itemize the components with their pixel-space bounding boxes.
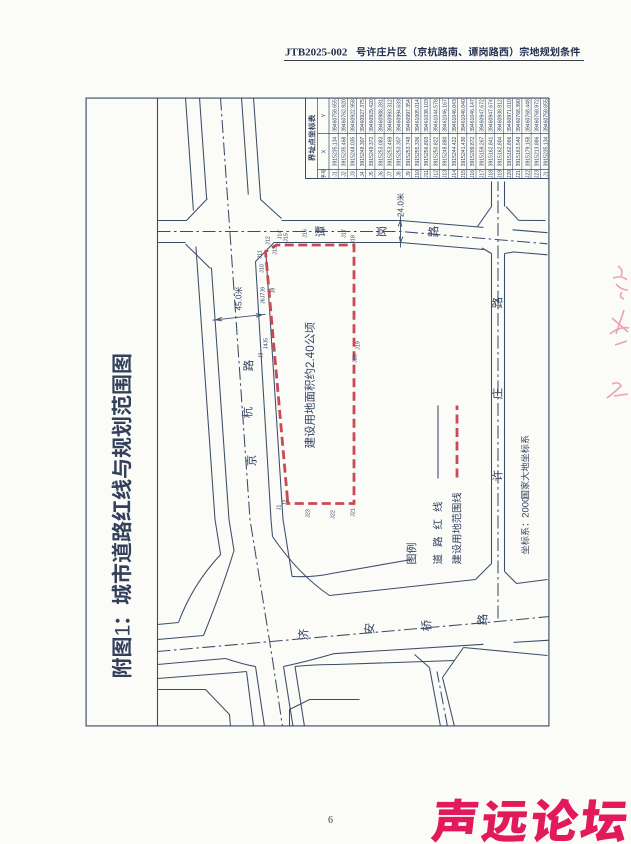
svg-text:J13: J13 bbox=[443, 170, 449, 178]
svg-text:J20: J20 bbox=[507, 170, 513, 178]
svg-text:39460947.674: 39460947.674 bbox=[489, 99, 495, 132]
svg-text:J19: J19 bbox=[498, 170, 504, 178]
svg-text:3915209.872: 3915209.872 bbox=[470, 136, 476, 166]
svg-text:39461046.043: 39461046.043 bbox=[452, 99, 458, 132]
svg-text:39460947.672: 39460947.672 bbox=[479, 99, 485, 132]
svg-text:JTB2025-002: JTB2025-002 bbox=[285, 47, 348, 59]
svg-text:3915162.841: 3915162.841 bbox=[489, 136, 495, 166]
svg-text:J11: J11 bbox=[258, 250, 264, 258]
svg-text:J8: J8 bbox=[397, 171, 403, 177]
svg-text:39460997.354: 39460997.354 bbox=[406, 99, 412, 132]
svg-text:J1: J1 bbox=[332, 171, 338, 177]
svg-text:J3: J3 bbox=[259, 353, 265, 359]
svg-text:J2: J2 bbox=[342, 171, 348, 177]
svg-text:J10: J10 bbox=[260, 264, 266, 273]
svg-text:3915244.422: 3915244.422 bbox=[452, 136, 458, 166]
svg-text:3915162.866: 3915162.866 bbox=[507, 136, 513, 166]
svg-text:6: 6 bbox=[328, 815, 333, 826]
svg-text:39460927.375: 39460927.375 bbox=[360, 99, 366, 132]
svg-text:3915241.430: 3915241.430 bbox=[461, 136, 467, 166]
svg-text:3915235.134: 3915235.134 bbox=[544, 136, 550, 166]
svg-text:J16: J16 bbox=[470, 170, 476, 178]
svg-text:J18: J18 bbox=[351, 235, 357, 244]
svg-text:J15: J15 bbox=[461, 170, 467, 178]
svg-text:3915249.372: 3915249.372 bbox=[369, 136, 375, 166]
svg-text:3915248.035: 3915248.035 bbox=[351, 136, 357, 166]
svg-text:3915163.540: 3915163.540 bbox=[516, 136, 522, 166]
svg-text:J17: J17 bbox=[479, 170, 485, 178]
svg-text:3915253.748: 3915253.748 bbox=[406, 136, 412, 166]
svg-text:J23: J23 bbox=[535, 170, 541, 178]
svg-text:39460768.448: 39460768.448 bbox=[525, 99, 531, 132]
svg-text:J5: J5 bbox=[369, 171, 375, 177]
svg-text:39460929.420: 39460929.420 bbox=[369, 99, 375, 132]
svg-text:J9: J9 bbox=[406, 171, 412, 177]
svg-text:1: 1 bbox=[111, 625, 135, 637]
svg-text:J7: J7 bbox=[388, 171, 394, 177]
svg-text:39460758.655: 39460758.655 bbox=[544, 99, 550, 132]
svg-text:3915248.880: 3915248.880 bbox=[443, 136, 449, 166]
svg-text:39460938.812: 39460938.812 bbox=[498, 99, 504, 132]
svg-text:39461005.014: 39461005.014 bbox=[415, 99, 421, 132]
svg-text:J19: J19 bbox=[356, 341, 362, 350]
svg-text:J18: J18 bbox=[489, 170, 495, 178]
svg-text:3915248.307: 3915248.307 bbox=[360, 136, 366, 166]
svg-text:J11: J11 bbox=[424, 170, 430, 178]
svg-text:39460922.958: 39460922.958 bbox=[351, 99, 357, 132]
svg-text:X: X bbox=[322, 149, 328, 153]
svg-text:J21: J21 bbox=[516, 170, 522, 178]
svg-text:39461038.103: 39461038.103 bbox=[424, 99, 430, 132]
svg-text:J21: J21 bbox=[351, 508, 357, 517]
svg-text:24.0: 24.0 bbox=[397, 201, 406, 217]
svg-text:3915255.336: 3915255.336 bbox=[415, 136, 421, 166]
svg-text:J12: J12 bbox=[266, 236, 272, 245]
svg-text:3915253.307: 3915253.307 bbox=[397, 136, 403, 166]
svg-text:J20: J20 bbox=[353, 354, 359, 363]
svg-text:J10: J10 bbox=[415, 170, 421, 178]
svg-text:3915235.468: 3915235.468 bbox=[342, 136, 348, 166]
svg-text:3915235.134: 3915235.134 bbox=[332, 136, 338, 166]
svg-text:39460988.281: 39460988.281 bbox=[378, 99, 384, 132]
svg-text:3915179.158: 3915179.158 bbox=[525, 136, 531, 166]
svg-text:45.0: 45.0 bbox=[235, 294, 244, 310]
svg-text:Y: Y bbox=[322, 113, 328, 117]
svg-text:J12: J12 bbox=[433, 170, 439, 178]
svg-text:3915253.469: 3915253.469 bbox=[388, 136, 394, 166]
svg-text:39461044.578: 39461044.578 bbox=[433, 99, 439, 132]
svg-text:39460768.390: 39460768.390 bbox=[516, 99, 522, 132]
svg-text:3915253.083: 3915253.083 bbox=[378, 136, 384, 166]
svg-text:J1: J1 bbox=[544, 171, 550, 177]
svg-text:39460994.633: 39460994.633 bbox=[397, 99, 403, 132]
svg-text:39461046.147: 39461046.147 bbox=[470, 99, 476, 132]
svg-text:39460971.010: 39460971.010 bbox=[507, 99, 513, 132]
svg-text:3915256.803: 3915256.803 bbox=[424, 136, 430, 166]
svg-text:3915159.267: 3915159.267 bbox=[479, 136, 485, 166]
svg-text:39461046.167: 39461046.167 bbox=[443, 99, 449, 132]
svg-text:J8: J8 bbox=[271, 288, 277, 294]
svg-text:J15: J15 bbox=[284, 233, 290, 242]
svg-text:39460762.920: 39460762.920 bbox=[342, 99, 348, 132]
svg-text:J6J7J9: J6J7J9 bbox=[261, 287, 267, 304]
svg-text:39460758.655: 39460758.655 bbox=[332, 99, 338, 132]
svg-text:J1: J1 bbox=[277, 505, 283, 511]
svg-text:J4: J4 bbox=[360, 171, 366, 177]
svg-text:J3: J3 bbox=[351, 171, 357, 177]
svg-text:J6: J6 bbox=[378, 171, 384, 177]
svg-text:J13: J13 bbox=[273, 246, 279, 255]
svg-text:3915250.822: 3915250.822 bbox=[433, 136, 439, 166]
svg-text:J17: J17 bbox=[342, 229, 348, 238]
svg-text:2.40: 2.40 bbox=[304, 345, 317, 368]
svg-text:3915213.886: 3915213.886 bbox=[535, 136, 541, 166]
svg-text:39460768.972: 39460768.972 bbox=[535, 99, 541, 132]
svg-text:3915162.804: 3915162.804 bbox=[498, 136, 504, 166]
svg-text:39460993.312: 39460993.312 bbox=[388, 99, 394, 132]
svg-text:2000: 2000 bbox=[520, 497, 531, 518]
svg-text:J4J5: J4J5 bbox=[264, 338, 270, 349]
svg-text:J23: J23 bbox=[306, 509, 312, 518]
svg-text:J2: J2 bbox=[283, 500, 289, 506]
svg-text:J14: J14 bbox=[452, 170, 458, 178]
svg-text:39461046.040: 39461046.040 bbox=[461, 99, 467, 132]
svg-text:J22: J22 bbox=[331, 510, 337, 519]
svg-text:J16: J16 bbox=[303, 229, 309, 238]
svg-text:J22: J22 bbox=[525, 170, 531, 178]
